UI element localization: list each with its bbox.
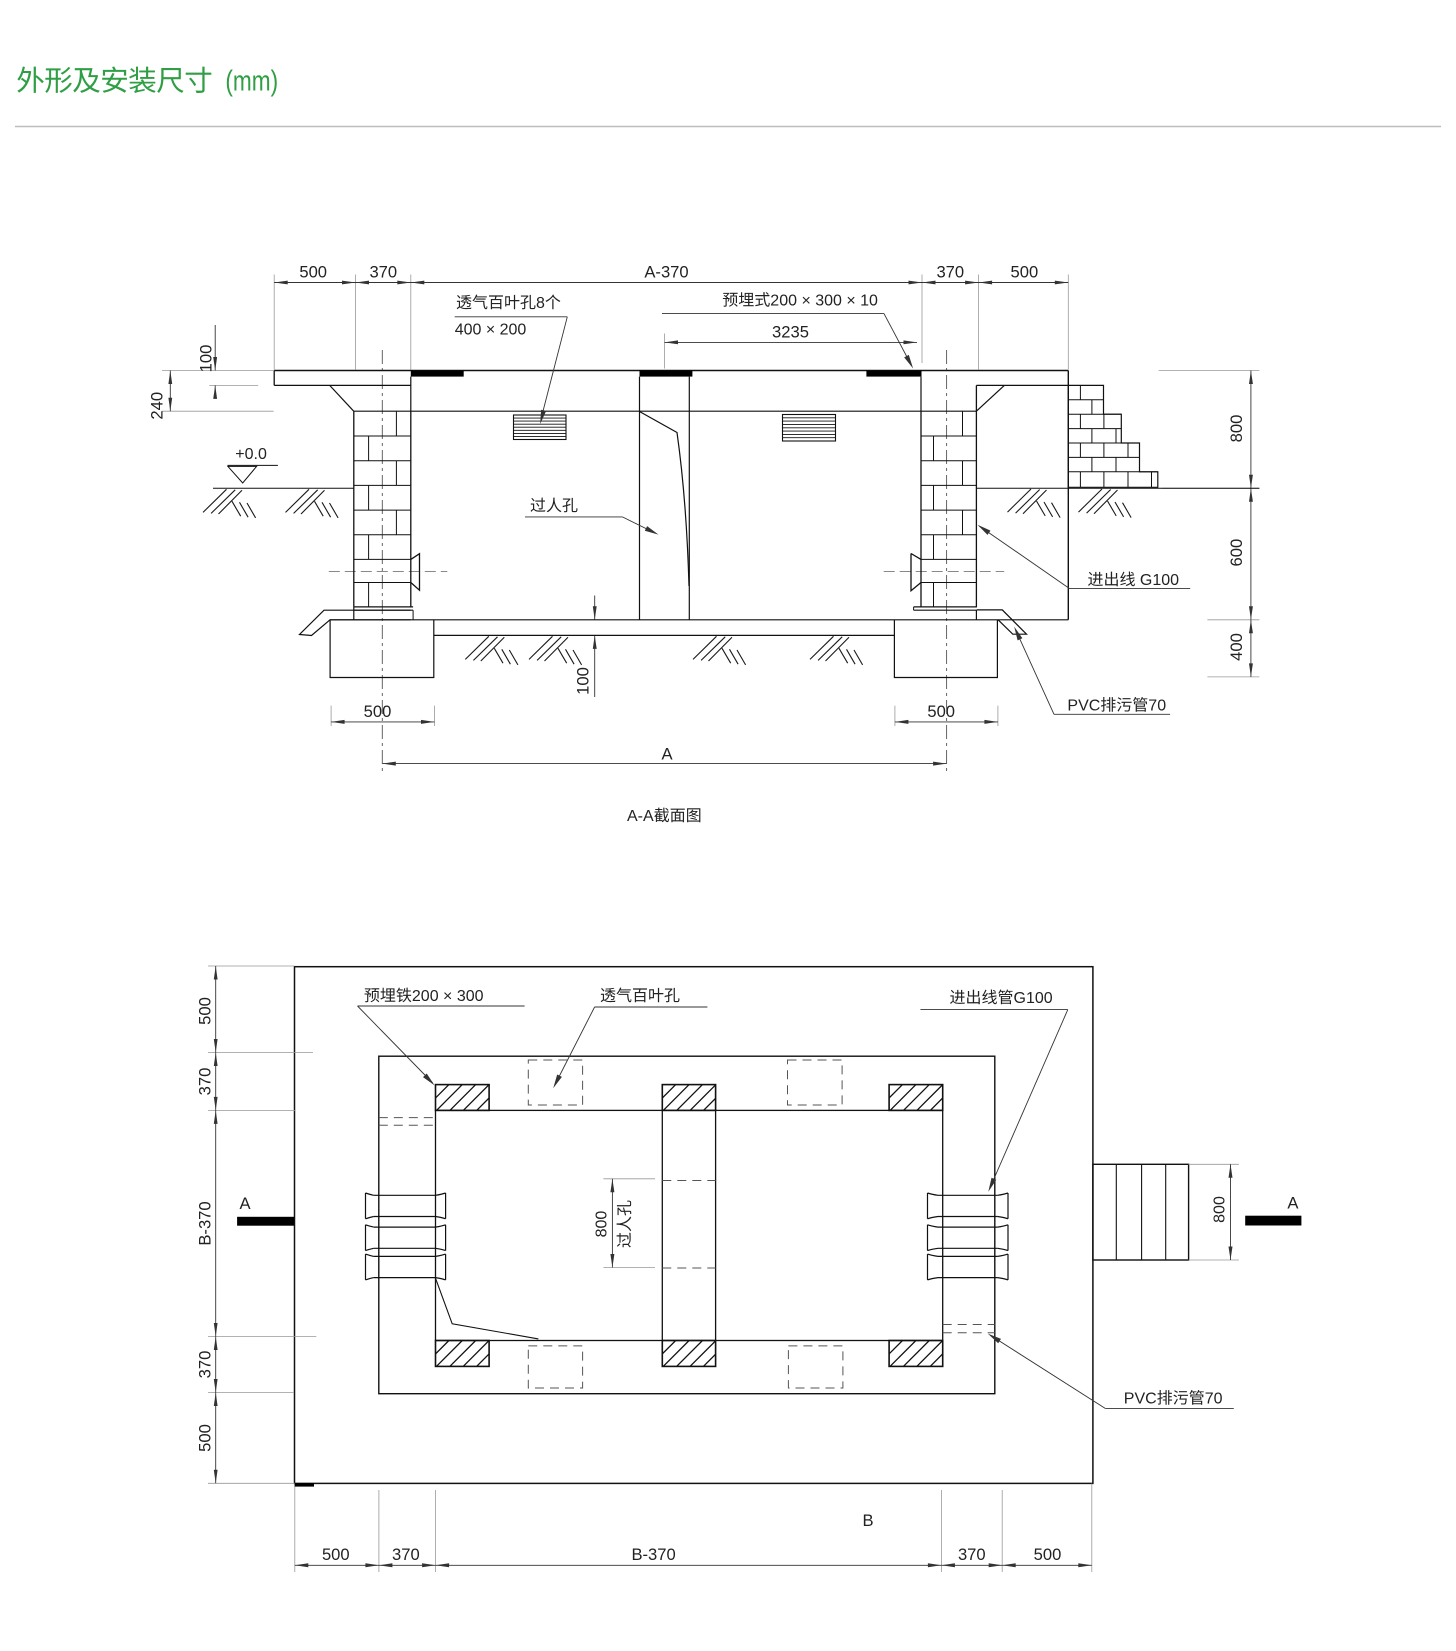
svg-text:70: 70 [1205, 1391, 1223, 1408]
svg-text:B-370: B-370 [196, 1201, 215, 1245]
svg-text:100: 100 [196, 345, 215, 373]
svg-text:(mm): (mm) [225, 66, 278, 98]
svg-text:370: 370 [196, 1068, 215, 1096]
svg-text:800: 800 [1211, 1196, 1228, 1223]
svg-text:A: A [661, 745, 673, 764]
svg-text:B: B [862, 1511, 873, 1530]
svg-text:500: 500 [364, 702, 392, 721]
svg-text:A-370: A-370 [644, 263, 688, 282]
svg-text:400 × 200: 400 × 200 [455, 322, 527, 339]
svg-text:500: 500 [322, 1545, 350, 1564]
svg-text:A: A [1287, 1194, 1299, 1213]
svg-text:370: 370 [369, 263, 397, 282]
svg-text:370: 370 [196, 1351, 215, 1379]
svg-text:70: 70 [1148, 698, 1166, 715]
svg-text:PVC: PVC [1067, 698, 1100, 715]
svg-text:370: 370 [958, 1545, 986, 1564]
svg-text:500: 500 [196, 1424, 215, 1452]
svg-text:A: A [239, 1194, 251, 1213]
svg-text:500: 500 [196, 997, 215, 1025]
svg-text:370: 370 [392, 1545, 420, 1564]
svg-text:200 × 300 × 10: 200 × 300 × 10 [770, 293, 878, 310]
svg-text:3235: 3235 [772, 323, 809, 342]
svg-text:500: 500 [927, 702, 955, 721]
svg-text:500: 500 [1011, 263, 1039, 282]
svg-text:200 × 300: 200 × 300 [412, 988, 484, 1005]
svg-text:400: 400 [1227, 633, 1246, 661]
svg-text:G100: G100 [1140, 572, 1179, 589]
svg-text:G100: G100 [1014, 990, 1053, 1007]
svg-text:100: 100 [574, 667, 593, 695]
svg-text:A-A: A-A [627, 808, 654, 825]
svg-text:PVC: PVC [1124, 1391, 1157, 1408]
svg-text:240: 240 [148, 392, 167, 420]
svg-text:B-370: B-370 [631, 1545, 675, 1564]
svg-text:+0.0: +0.0 [235, 446, 267, 463]
svg-text:800: 800 [593, 1211, 610, 1238]
svg-text:500: 500 [1034, 1545, 1062, 1564]
svg-text:370: 370 [936, 263, 964, 282]
svg-text:600: 600 [1227, 539, 1246, 567]
svg-text:500: 500 [299, 263, 327, 282]
svg-text:800: 800 [1227, 415, 1246, 443]
svg-text:8: 8 [536, 295, 545, 312]
